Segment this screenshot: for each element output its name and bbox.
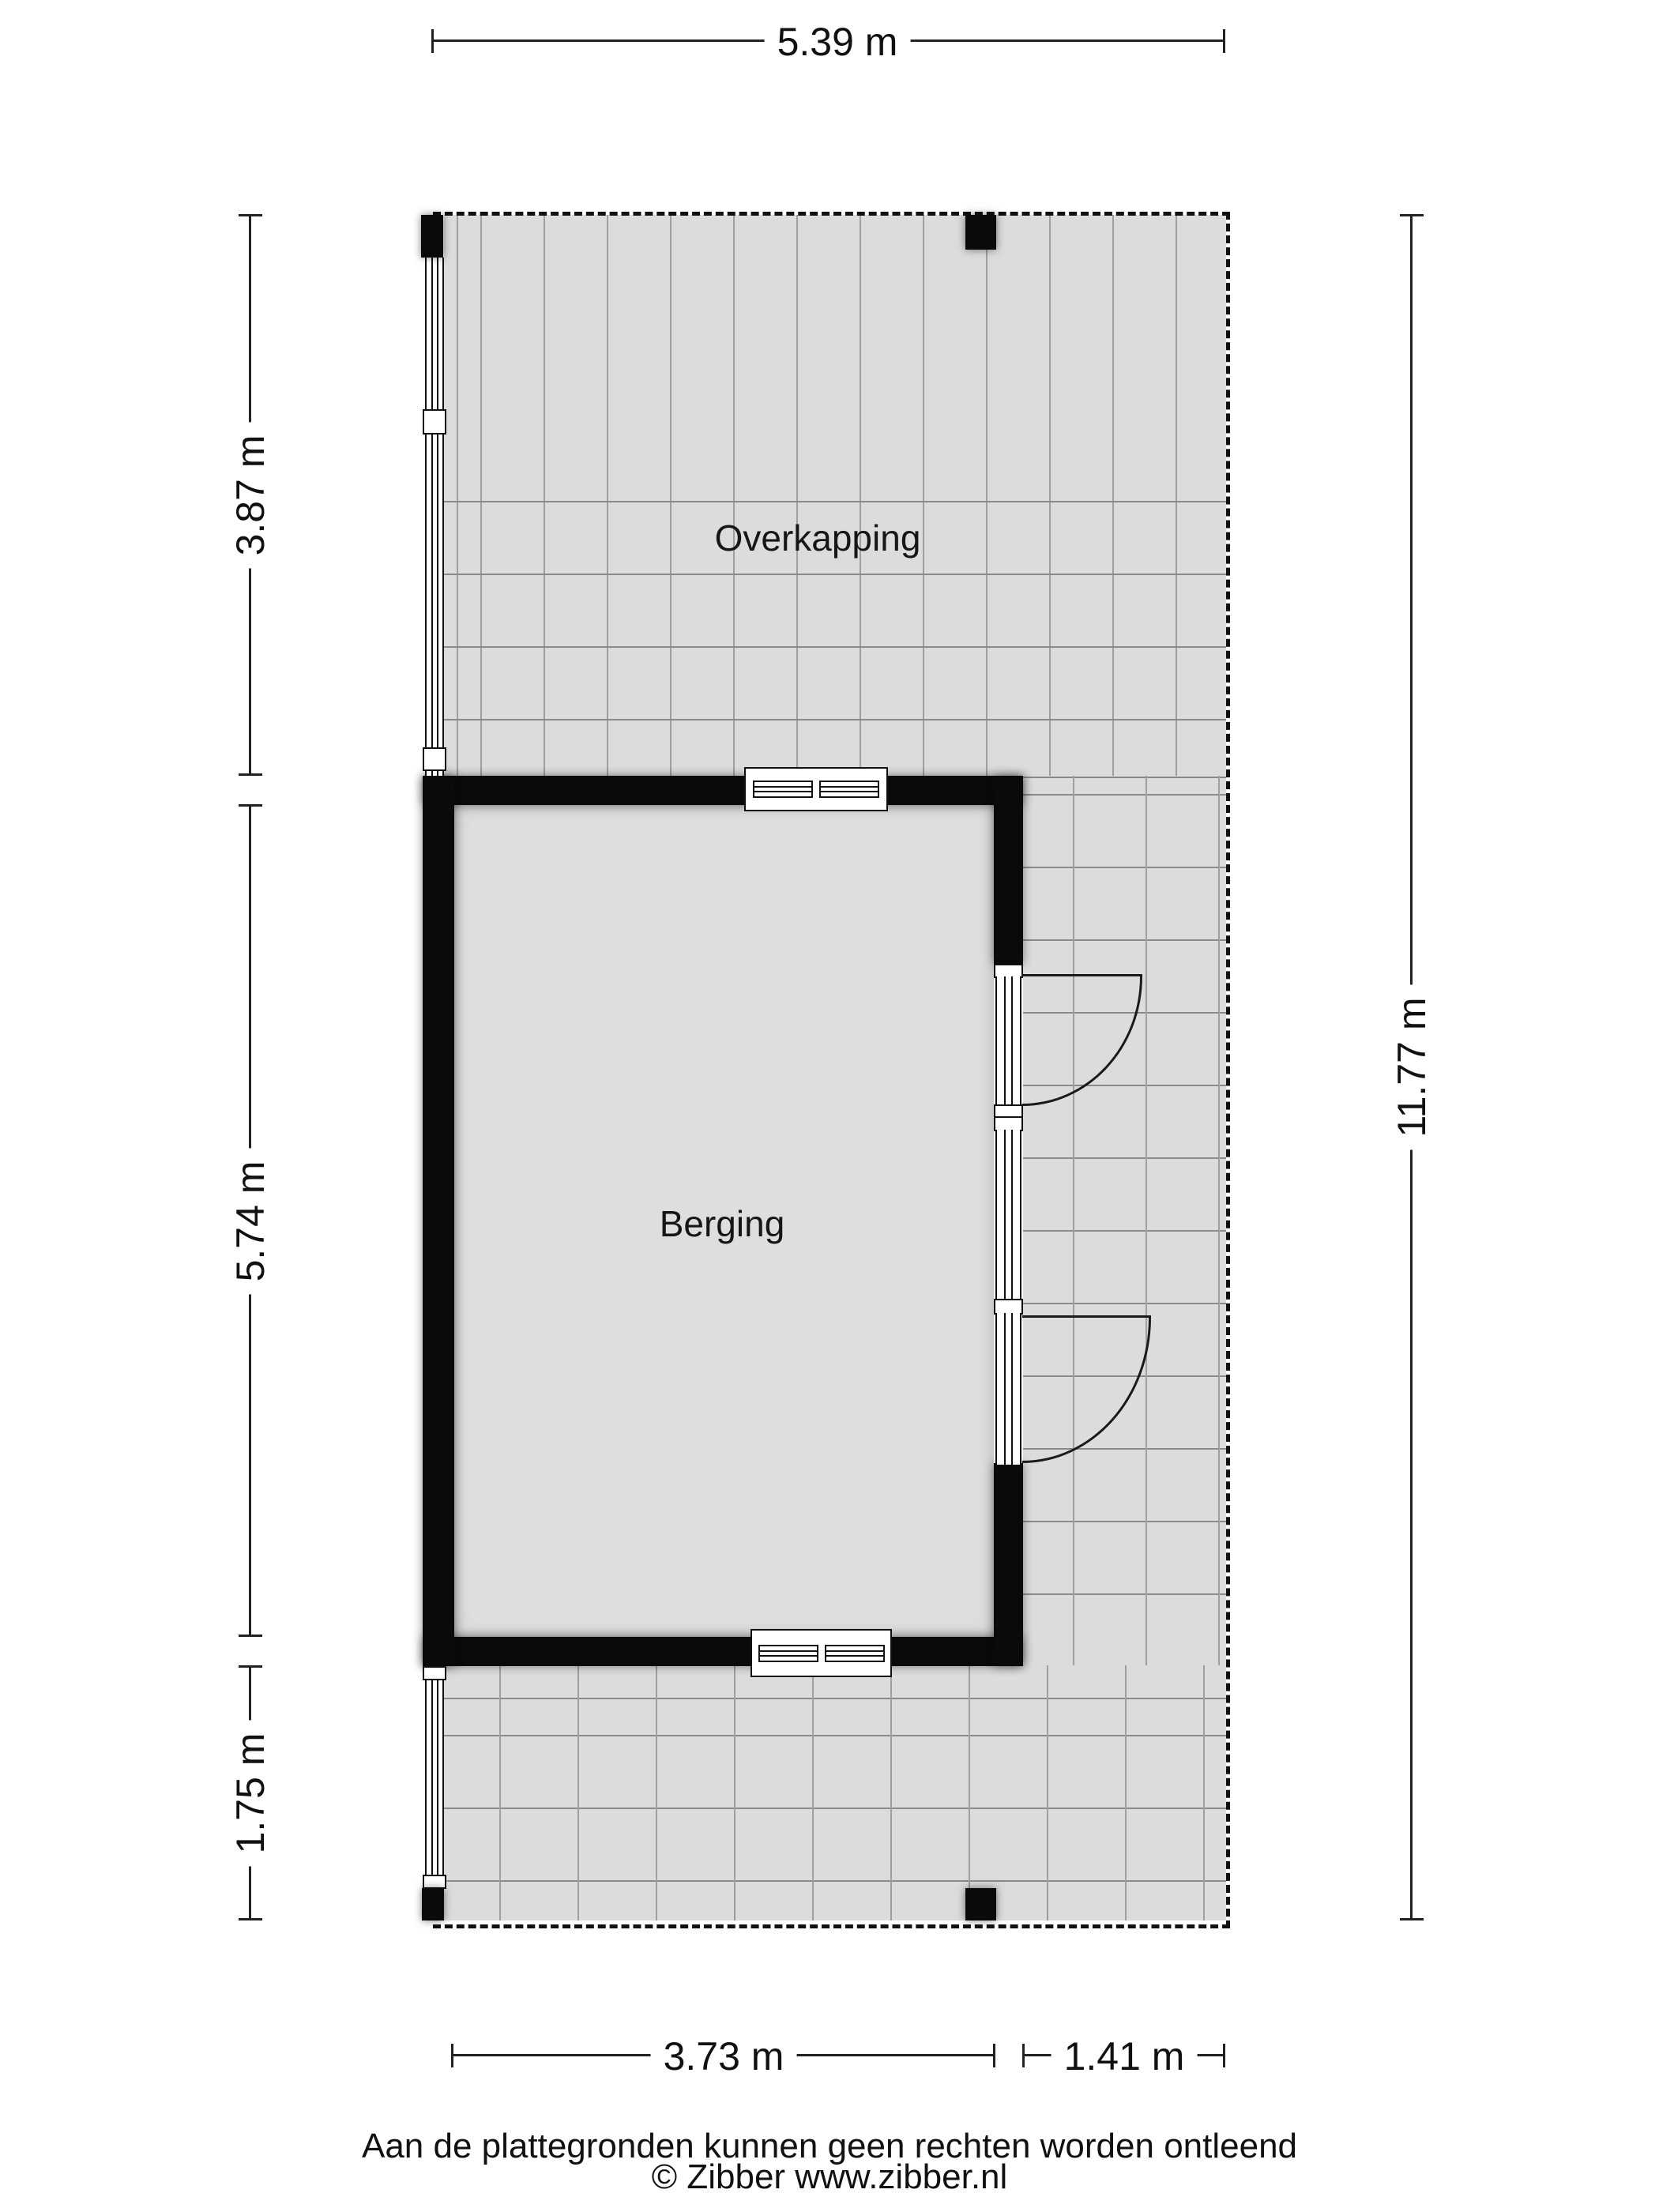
wall-right-upper	[994, 776, 1023, 964]
dim-tick	[1223, 29, 1225, 53]
dim-label-left-middle: 5.74 m	[228, 1149, 273, 1295]
wall-right-lower	[994, 1463, 1023, 1666]
footer-copyright: © Zibber www.zibber.nl	[0, 2157, 1659, 2197]
pillar-bottom-left	[422, 1888, 444, 1920]
dim-label-bottom-left: 3.73 m	[651, 2033, 797, 2079]
pillar-top-middle	[965, 215, 996, 250]
pillar-top-left	[421, 215, 443, 258]
glass-door-1-panel	[995, 976, 1021, 1106]
dim-label-bottom-right: 1.41 m	[1051, 2033, 1198, 2079]
dim-label-top: 5.39 m	[765, 19, 911, 65]
glass-door-2-panel	[995, 1313, 1021, 1465]
floorplan-page: Overkapping Berging 5.39 m 3.8	[0, 0, 1659, 2212]
fence-left-top	[425, 258, 444, 776]
window-icon-top-wall	[744, 767, 888, 811]
dim-tick	[239, 1635, 262, 1637]
window-pane-icon	[825, 1645, 885, 1662]
fence-joint-icon	[423, 1875, 446, 1889]
fixed-window-right-panel	[995, 1130, 1021, 1300]
frame-connector-icon	[994, 1299, 1023, 1315]
wall-top	[423, 776, 1023, 805]
room-label-overkapping: Overkapping	[715, 517, 921, 559]
dim-label-right: 11.77 m	[1389, 985, 1435, 1150]
window-pane-icon	[819, 781, 879, 798]
dim-tick	[1223, 2044, 1225, 2067]
dim-tick	[1400, 1918, 1424, 1920]
window-pane-icon	[753, 781, 813, 798]
dim-label-left-bottom: 1.75 m	[228, 1721, 273, 1867]
fence-left-bottom	[425, 1666, 444, 1888]
dim-label-left-top: 3.87 m	[228, 423, 273, 569]
fence-joint-icon	[423, 409, 446, 434]
dim-tick	[239, 773, 262, 776]
window-icon-bottom-wall	[750, 1629, 892, 1677]
window-pane-icon	[758, 1645, 818, 1662]
dim-tick	[993, 2044, 995, 2067]
wall-bottom	[423, 1637, 1023, 1666]
fence-joint-icon	[423, 1666, 446, 1680]
dim-tick	[239, 1918, 262, 1920]
wall-left	[423, 776, 454, 1666]
fence-joint-icon	[423, 747, 446, 771]
pillar-bottom-middle	[965, 1888, 996, 1920]
room-label-berging: Berging	[660, 1202, 785, 1245]
